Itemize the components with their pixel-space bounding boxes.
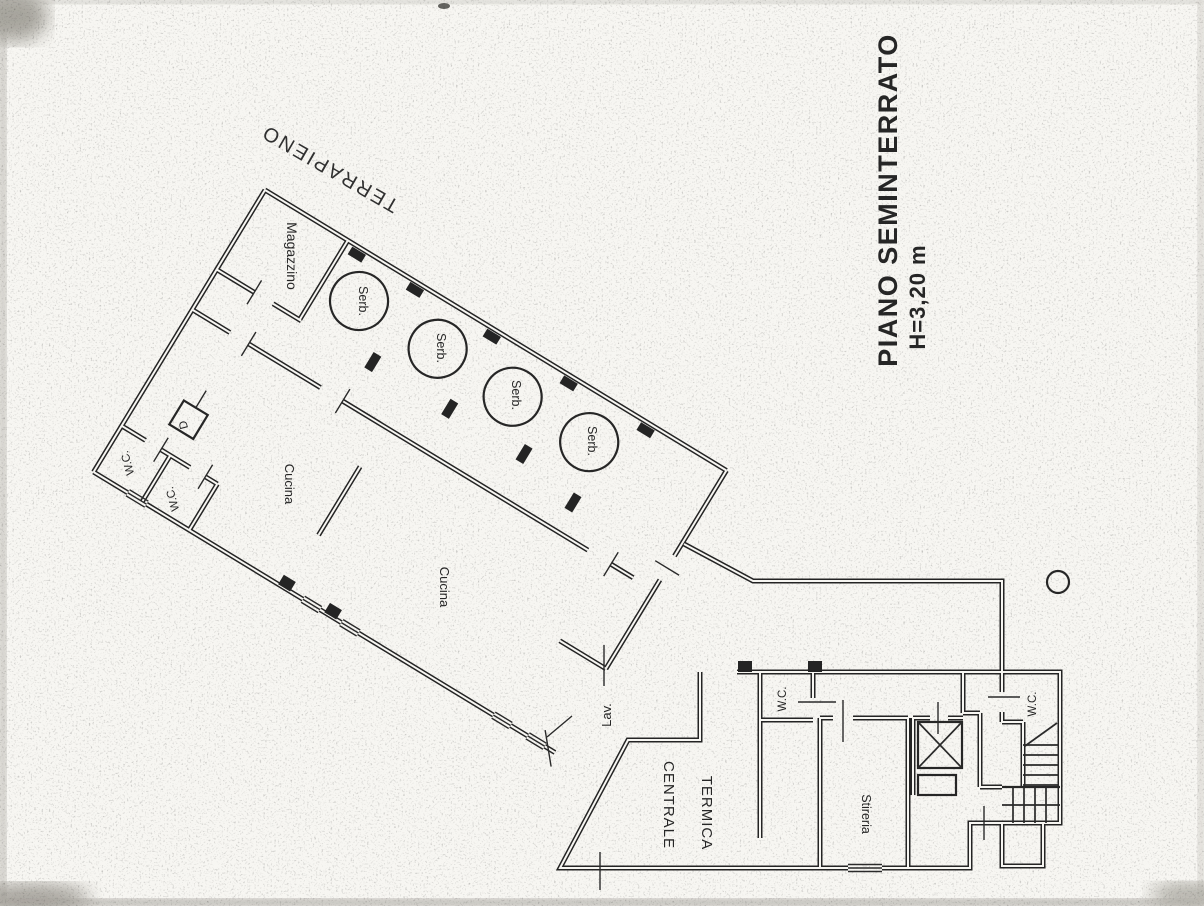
label-termica: TERMICA [698, 776, 715, 851]
label-magazzino: Magazzino [284, 222, 300, 290]
floor-plan-drawing: TERRAPIENO PIANO SEMINTERRATO H=3,20 m M… [0, 0, 1204, 906]
label-wc-block-right: W.C. [1027, 692, 1039, 717]
wall-bump [738, 661, 752, 672]
label-stireria: Stireria [859, 794, 873, 834]
label-serb-3: Serb. [509, 380, 523, 410]
label-cucina-1: Cucina [282, 464, 297, 505]
wall-bump [808, 661, 822, 672]
label-centrale: CENTRALE [660, 761, 677, 849]
page-title: PIANO SEMINTERRATO [873, 33, 903, 367]
label-wc-block-left: W.C. [777, 687, 789, 712]
label-serb-2: Serb. [434, 333, 448, 363]
scanned-floor-plan-page: TERRAPIENO PIANO SEMINTERRATO H=3,20 m M… [0, 0, 1204, 906]
label-lav: Lav. [599, 703, 614, 727]
label-serb-1: Serb. [356, 286, 370, 316]
label-cucina-2: Cucina [437, 567, 452, 608]
label-serb-4: Serb. [585, 426, 599, 456]
page-subtitle-height: H=3,20 m [905, 244, 930, 349]
